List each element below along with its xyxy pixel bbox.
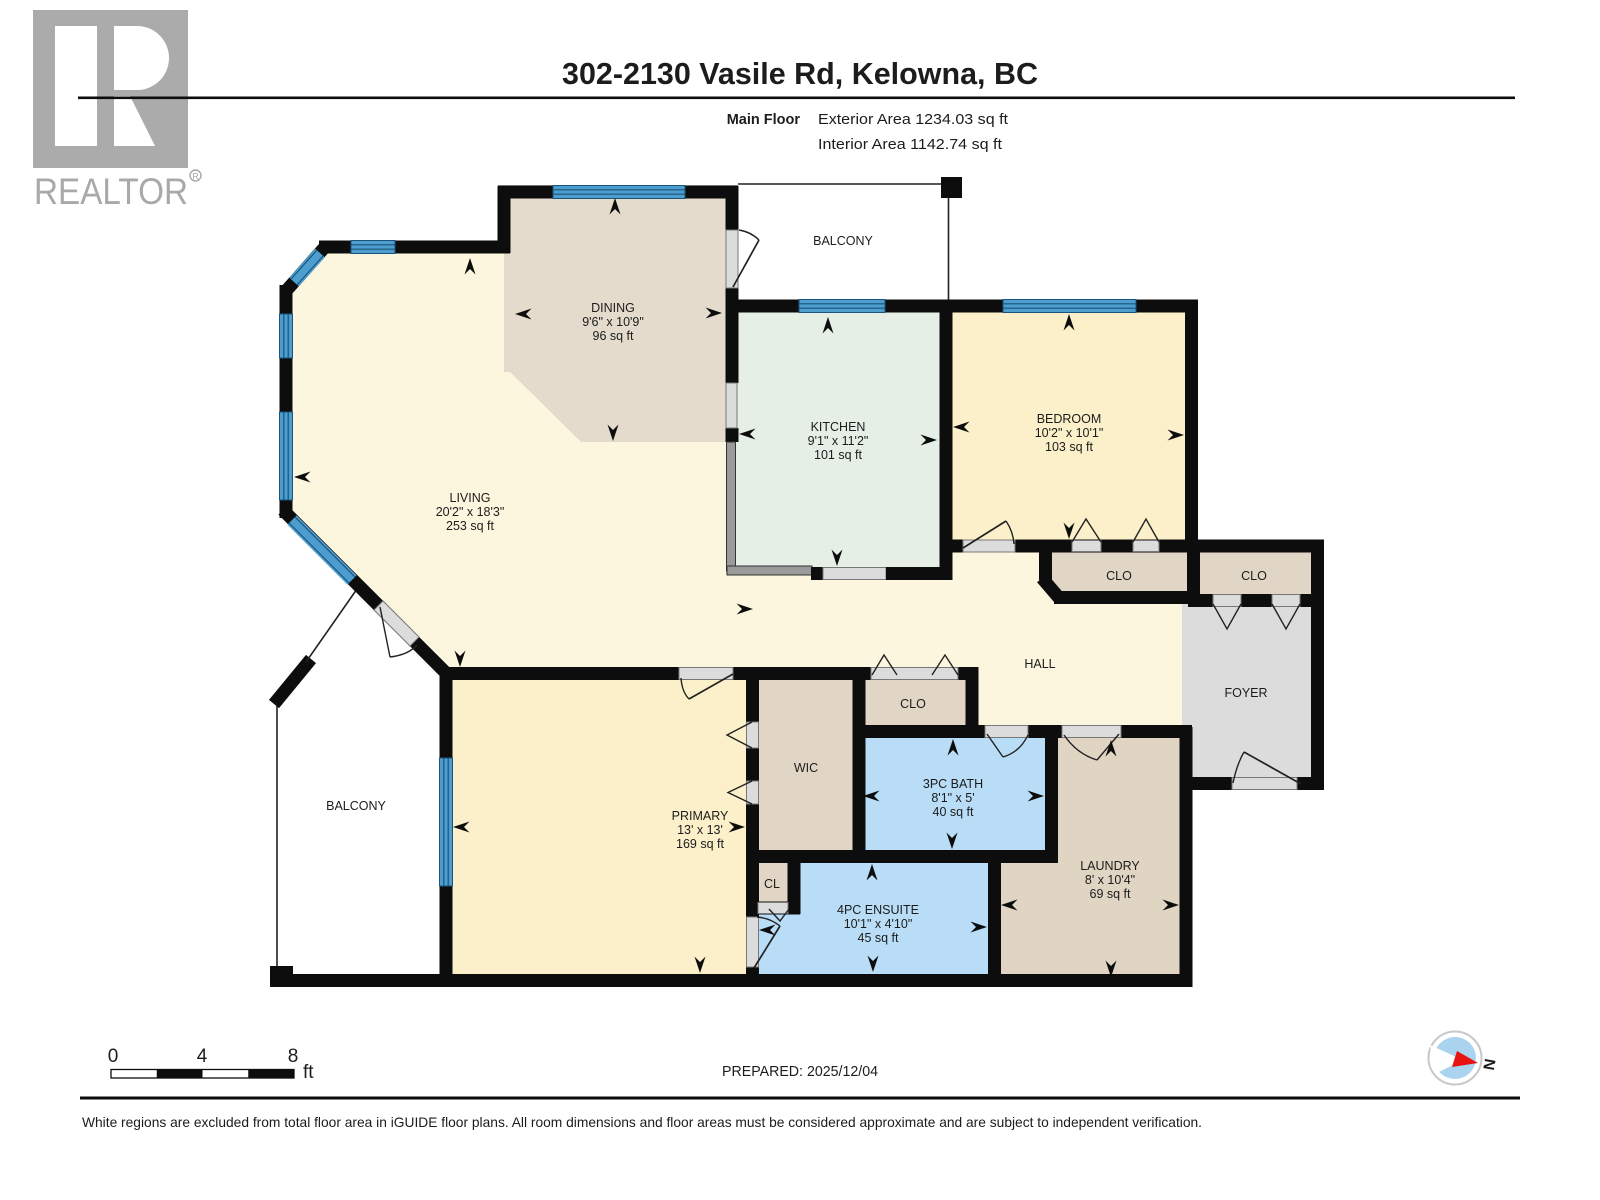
svg-text:BEDROOM: BEDROOM [1037,412,1102,426]
svg-text:8' x 10'4": 8' x 10'4" [1085,873,1135,887]
svg-text:FOYER: FOYER [1224,686,1267,700]
svg-text:CL: CL [764,877,780,891]
svg-text:302-2130 Vasile Rd, Kelowna, B: 302-2130 Vasile Rd, Kelowna, BC [562,56,1038,91]
svg-text:4PC ENSUITE: 4PC ENSUITE [837,903,919,917]
svg-text:8'1" x 5': 8'1" x 5' [931,791,974,805]
svg-text:DINING: DINING [591,301,635,315]
svg-text:BALCONY: BALCONY [813,234,873,248]
svg-text:CLO: CLO [1241,569,1267,583]
svg-text:20'2" x 18'3": 20'2" x 18'3" [436,505,505,519]
svg-text:4: 4 [197,1046,208,1067]
svg-text:LAUNDRY: LAUNDRY [1080,859,1140,873]
svg-text:Interior Area 1142.74 sq ft: Interior Area 1142.74 sq ft [818,136,1003,153]
svg-text:8: 8 [288,1046,299,1067]
svg-text:9'1" x 11'2": 9'1" x 11'2" [808,434,869,448]
svg-text:3PC BATH: 3PC BATH [923,777,983,791]
svg-text:9'6" x 10'9": 9'6" x 10'9" [582,315,644,329]
svg-text:HALL: HALL [1024,657,1055,671]
svg-text:101 sq ft: 101 sq ft [814,448,862,462]
svg-text:0: 0 [108,1046,119,1067]
svg-text:169 sq ft: 169 sq ft [676,837,724,851]
svg-text:253 sq ft: 253 sq ft [446,519,494,533]
svg-text:BALCONY: BALCONY [326,799,386,813]
svg-text:10'1" x 4'10": 10'1" x 4'10" [844,917,913,931]
svg-text:13' x 13': 13' x 13' [677,823,723,837]
svg-text:PREPARED: 2025/12/04: PREPARED: 2025/12/04 [722,1064,878,1080]
svg-text:ft: ft [303,1062,314,1083]
svg-text:REALTOR: REALTOR [34,171,188,212]
svg-text:LIVING: LIVING [450,491,491,505]
svg-text:CLO: CLO [900,697,926,711]
svg-text:Exterior Area 1234.03 sq ft: Exterior Area 1234.03 sq ft [818,111,1009,128]
svg-text:103 sq ft: 103 sq ft [1045,440,1093,454]
svg-text:40 sq ft: 40 sq ft [933,805,975,819]
svg-text:96 sq ft: 96 sq ft [593,329,635,343]
svg-text:Main Floor: Main Floor [727,112,801,128]
svg-text:KITCHEN: KITCHEN [811,420,866,434]
svg-text:10'2" x 10'1": 10'2" x 10'1" [1035,426,1104,440]
svg-text:WIC: WIC [794,761,818,775]
svg-text:CLO: CLO [1106,569,1132,583]
svg-text:69 sq ft: 69 sq ft [1090,887,1132,901]
svg-text:45 sq ft: 45 sq ft [858,931,900,945]
svg-text:R: R [192,172,199,182]
svg-text:White regions are excluded fro: White regions are excluded from total fl… [82,1115,1202,1130]
svg-text:PRIMARY: PRIMARY [672,809,729,823]
